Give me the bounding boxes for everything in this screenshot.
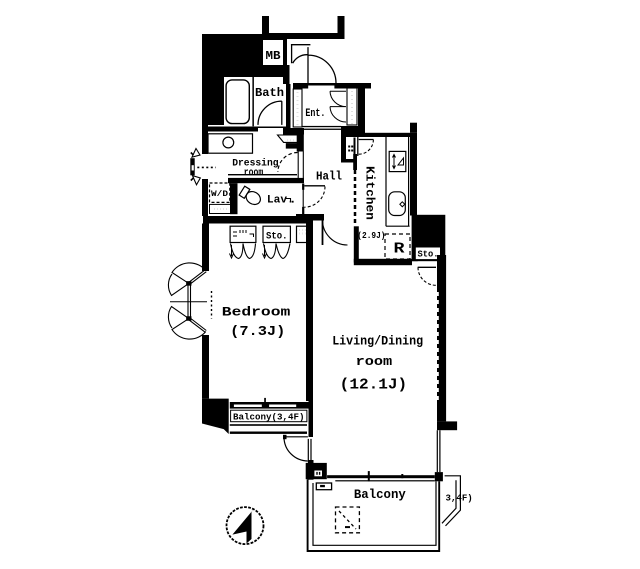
svg-text:room: room	[244, 168, 263, 179]
svg-text:W/D: W/D	[211, 190, 228, 199]
svg-text:Hall: Hall	[316, 170, 342, 184]
svg-text:3,4F): 3,4F)	[446, 493, 473, 504]
svg-text:Living/Dining: Living/Dining	[332, 335, 423, 349]
svg-text:Lav.: Lav.	[267, 195, 294, 207]
svg-text:MB: MB	[266, 49, 281, 63]
svg-text:(12.1J): (12.1J)	[340, 377, 408, 394]
svg-text:Sto.: Sto.	[266, 232, 288, 243]
svg-text:R: R	[394, 241, 405, 258]
svg-text:Balcony(3,4F): Balcony(3,4F)	[233, 412, 305, 423]
svg-text:Ent.: Ent.	[305, 108, 325, 120]
svg-text:(2.9J): (2.9J)	[357, 231, 385, 241]
svg-text:Balcony: Balcony	[354, 488, 406, 502]
svg-text:Sto.: Sto.	[418, 250, 439, 260]
svg-text:room: room	[356, 355, 393, 369]
svg-text:Bath: Bath	[255, 86, 284, 100]
svg-text:Bedroom: Bedroom	[222, 306, 291, 320]
svg-text:Kitchen: Kitchen	[363, 166, 377, 220]
svg-text:(7.3J): (7.3J)	[230, 325, 285, 340]
